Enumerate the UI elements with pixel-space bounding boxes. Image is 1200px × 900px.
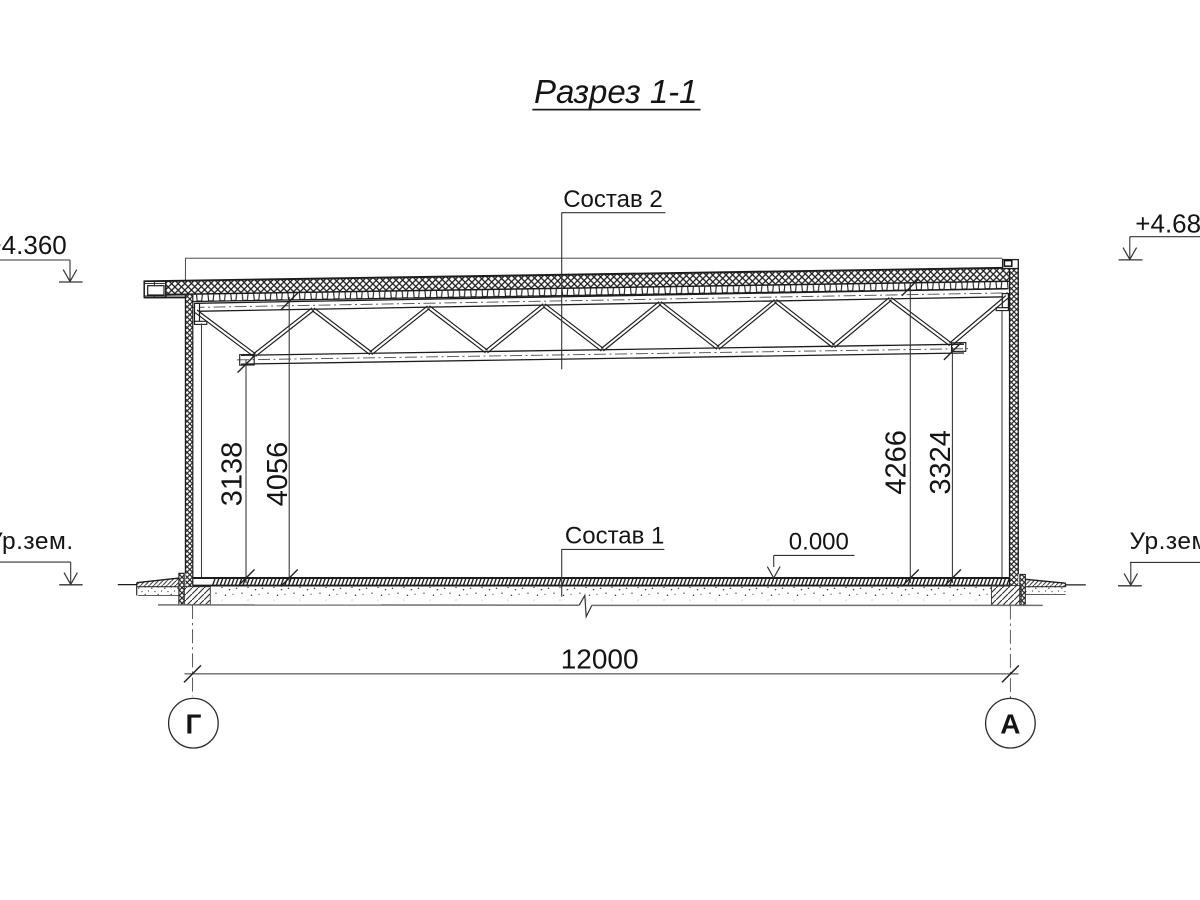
svg-text:Ур.зем.: Ур.зем. (0, 528, 74, 555)
svg-text:4056: 4056 (262, 442, 294, 507)
svg-text:4266: 4266 (881, 430, 913, 495)
svg-text:+4.360: +4.360 (0, 230, 67, 260)
svg-text:Ур.зем.: Ур.зем. (1130, 528, 1200, 555)
svg-text:3138: 3138 (216, 442, 248, 507)
svg-text:+4.680: +4.680 (1135, 208, 1200, 238)
svg-text:А: А (1000, 708, 1020, 739)
svg-text:12000: 12000 (561, 643, 639, 674)
svg-text:3324: 3324 (925, 430, 957, 495)
svg-text:Состав 1: Состав 1 (565, 523, 665, 550)
svg-text:0.000: 0.000 (789, 528, 849, 555)
svg-text:Разрез 1-1: Разрез 1-1 (534, 73, 698, 110)
svg-text:Состав 2: Состав 2 (563, 186, 663, 213)
svg-text:Г: Г (185, 708, 201, 739)
